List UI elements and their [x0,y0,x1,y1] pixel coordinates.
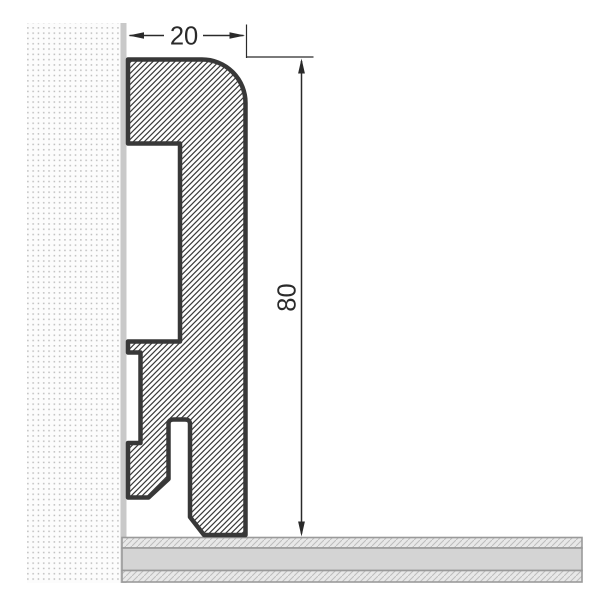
width-arrow-right-icon [230,32,246,39]
wall-dotted-texture [27,23,121,583]
skirting-profile-section [128,60,246,536]
height-arrow-bottom-icon [298,522,305,537]
width-dimension-label: 20 [170,23,198,51]
floor-bottom-layer [122,571,582,583]
width-arrow-left-icon [129,32,145,39]
drawing-canvas: 20 80 [0,0,604,604]
width-dimension: 20 [129,23,247,59]
height-dimension: 80 [247,57,314,537]
floor-core-layer [122,548,582,571]
height-dimension-label: 80 [274,283,302,311]
floor-top-layer [122,538,582,549]
floor [122,538,582,583]
wall-surface-strip [121,23,127,583]
technical-drawing: 20 80 [0,0,604,604]
height-arrow-top-icon [298,59,305,74]
